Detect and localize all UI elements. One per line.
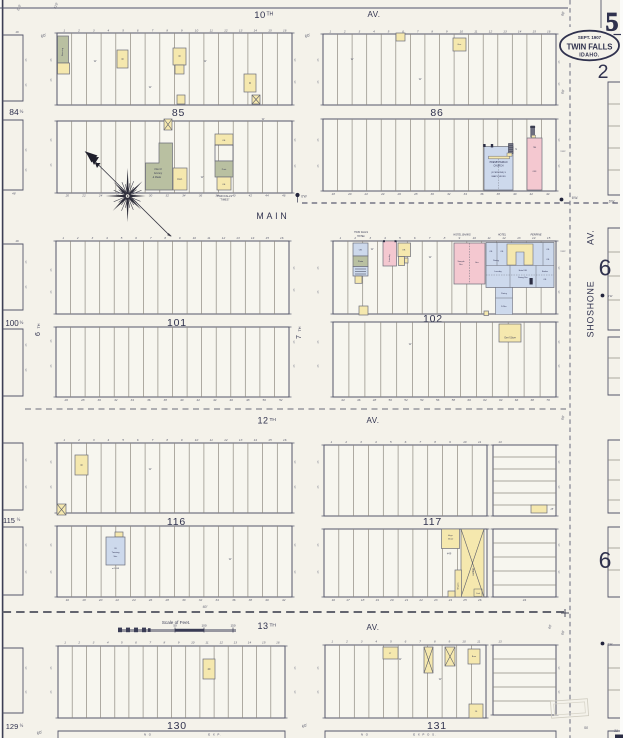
svg-text:Gen’l Store: Gen’l Store <box>504 337 516 340</box>
svg-text:28: 28 <box>413 192 418 196</box>
svg-text:28: 28 <box>80 398 85 402</box>
svg-text:12: 12 <box>224 438 228 442</box>
svg-text:40: 40 <box>265 598 269 602</box>
svg-text:34: 34 <box>130 398 134 402</box>
svg-text:W: W <box>409 342 412 346</box>
svg-text:24: 24 <box>448 598 453 602</box>
svg-text:8: 8 <box>431 30 433 34</box>
svg-text:7: 7 <box>429 236 431 240</box>
svg-text:15: 15 <box>547 236 551 240</box>
svg-text:7: 7 <box>417 30 419 34</box>
svg-text:11: 11 <box>477 640 480 644</box>
svg-text:24: 24 <box>98 194 103 198</box>
svg-text:9: 9 <box>459 236 461 240</box>
svg-text:3: 3 <box>93 641 95 645</box>
svg-text:D: D <box>179 54 181 58</box>
svg-text:100: 100 <box>5 319 19 328</box>
svg-text:22: 22 <box>114 598 119 602</box>
svg-text:Dining: Dining <box>493 260 499 262</box>
svg-text:100: 100 <box>201 624 206 628</box>
svg-text:Off.: Off. <box>402 250 406 252</box>
svg-text:11: 11 <box>205 641 208 645</box>
svg-text:½: ½ <box>20 723 24 728</box>
svg-text:30: 30 <box>149 194 153 198</box>
svg-text:9: 9 <box>449 440 451 444</box>
svg-text:6: 6 <box>405 440 407 444</box>
svg-text:42: 42 <box>249 194 253 198</box>
svg-text:Wagons: Wagons <box>458 583 460 590</box>
svg-text:W: W <box>262 117 265 121</box>
svg-text:Gro.: Gro. <box>457 43 462 46</box>
svg-text:½: ½ <box>17 517 21 522</box>
svg-text:18: 18 <box>82 598 86 602</box>
svg-text:13: 13 <box>239 29 243 33</box>
svg-text:7: 7 <box>152 29 154 33</box>
svg-text:3: 3 <box>369 236 371 240</box>
svg-text:4: 4 <box>375 440 377 444</box>
svg-text:7: 7 <box>419 440 421 444</box>
svg-text:2: 2 <box>353 236 356 240</box>
svg-text:W: W <box>149 467 152 471</box>
svg-text:6: 6 <box>599 255 612 281</box>
svg-text:16: 16 <box>280 236 284 240</box>
svg-text:13: 13 <box>234 641 238 645</box>
svg-text:8: 8 <box>434 640 436 644</box>
svg-text:3: 3 <box>92 236 94 240</box>
svg-text:10: 10 <box>254 10 266 21</box>
svg-text:5: 5 <box>121 236 123 240</box>
svg-text:150: 150 <box>230 624 235 628</box>
svg-text:60': 60' <box>203 605 208 609</box>
svg-text:50: 50 <box>262 398 266 402</box>
svg-text:3: 3 <box>93 438 95 442</box>
svg-text:Print: Print <box>222 168 227 171</box>
svg-text:44: 44 <box>265 194 269 198</box>
svg-text:10: 10 <box>191 641 195 645</box>
svg-text:MAIN: MAIN <box>256 211 289 221</box>
svg-text:Grain: Grain <box>448 539 454 541</box>
svg-text:10: 10 <box>195 438 199 442</box>
svg-text:12: 12 <box>489 30 493 34</box>
svg-text:IDAHO.: IDAHO. <box>579 52 600 58</box>
svg-text:30: 30 <box>430 192 434 196</box>
svg-text:20: 20 <box>65 194 70 198</box>
svg-text:13: 13 <box>257 621 268 631</box>
svg-text:Off.: Off. <box>546 259 550 261</box>
svg-text:44: 44 <box>546 192 550 196</box>
svg-text:TWIN FALLS: TWIN FALLS <box>567 42 613 51</box>
svg-text:115: 115 <box>3 516 15 525</box>
svg-text:13: 13 <box>236 236 240 240</box>
svg-text:26: 26 <box>396 192 401 196</box>
svg-text:86: 86 <box>430 107 443 119</box>
svg-text:6: 6 <box>405 640 407 644</box>
svg-text:22: 22 <box>81 194 86 198</box>
svg-text:129: 129 <box>6 722 19 731</box>
svg-text:36: 36 <box>147 398 151 402</box>
svg-text:9: 9 <box>178 641 180 645</box>
svg-text:TH: TH <box>270 623 277 629</box>
svg-text:15: 15 <box>265 236 269 240</box>
svg-text:46: 46 <box>282 194 286 198</box>
svg-text:64: 64 <box>499 398 503 402</box>
svg-text:Coal: Coal <box>476 593 480 595</box>
svg-text:13: 13 <box>503 30 507 34</box>
svg-text:1: 1 <box>64 641 66 645</box>
svg-text:32: 32 <box>114 398 118 402</box>
svg-text:Gro.: Gro. <box>475 261 479 264</box>
svg-text:5: 5 <box>390 440 392 444</box>
svg-text:& Meats: & Meats <box>153 176 162 179</box>
svg-text:W: W <box>429 255 432 259</box>
svg-text:Training: Training <box>112 551 121 554</box>
svg-text:52: 52 <box>279 398 283 402</box>
svg-text:W: W <box>229 557 232 561</box>
svg-text:20: 20 <box>98 598 103 602</box>
svg-text:30: 30 <box>97 398 101 402</box>
svg-text:N O: N O <box>144 733 152 737</box>
svg-text:Barber: Barber <box>542 271 548 273</box>
svg-text:14: 14 <box>254 29 258 33</box>
svg-text:46: 46 <box>229 398 233 402</box>
svg-text:10: 10 <box>463 440 467 444</box>
svg-text:40: 40 <box>232 194 236 198</box>
svg-text:14: 14 <box>251 236 255 240</box>
svg-text:4: 4 <box>384 236 386 240</box>
svg-text:52: 52 <box>404 398 408 402</box>
svg-text:44: 44 <box>341 398 345 402</box>
svg-text:50: 50 <box>388 398 392 402</box>
svg-text:9: 9 <box>179 236 181 240</box>
svg-text:117: 117 <box>423 516 442 528</box>
svg-text:W: W <box>351 57 354 61</box>
svg-text:38: 38 <box>249 598 253 602</box>
svg-text:1: 1 <box>63 29 65 33</box>
svg-text:60: 60 <box>467 398 471 402</box>
svg-text:36: 36 <box>480 192 484 196</box>
svg-text:3: 3 <box>359 30 361 34</box>
svg-text:10: 10 <box>472 236 476 240</box>
svg-text:14: 14 <box>254 438 258 442</box>
svg-text:17: 17 <box>346 598 350 602</box>
svg-text:(5 PERSONS) S: (5 PERSONS) S <box>491 172 506 174</box>
svg-text:42: 42 <box>196 398 200 402</box>
svg-text:20: 20 <box>347 192 352 196</box>
svg-text:8: 8 <box>434 440 436 444</box>
svg-text:Off.: Off. <box>546 249 550 251</box>
svg-text:36: 36 <box>232 598 236 602</box>
svg-text:5′WP: 5′WP <box>560 251 566 253</box>
svg-text:Lumber: Lumber <box>472 568 475 576</box>
svg-text:12: 12 <box>222 236 226 240</box>
svg-text:2: 2 <box>77 438 80 442</box>
svg-text:42: 42 <box>529 192 533 196</box>
svg-text:AV.: AV. <box>366 416 379 425</box>
svg-text:1: 1 <box>63 438 65 442</box>
svg-text:32: 32 <box>165 194 169 198</box>
svg-text:D: D <box>122 57 124 61</box>
svg-text:14: 14 <box>248 641 252 645</box>
svg-text:21: 21 <box>404 598 409 602</box>
svg-text:34: 34 <box>463 192 467 196</box>
svg-text:7: 7 <box>419 640 421 644</box>
svg-text:2: 2 <box>345 640 348 644</box>
svg-text:2: 2 <box>77 641 80 645</box>
svg-text:26: 26 <box>148 598 153 602</box>
svg-text:56: 56 <box>436 398 440 402</box>
svg-text:Rm.: Rm. <box>459 264 463 266</box>
svg-text:44: 44 <box>213 398 217 402</box>
svg-text:15: 15 <box>532 30 536 34</box>
svg-text:2: 2 <box>598 61 609 83</box>
svg-text:12: 12 <box>502 236 506 240</box>
svg-text:15: 15 <box>262 641 266 645</box>
svg-text:40: 40 <box>513 192 517 196</box>
svg-text:1: 1 <box>331 440 333 444</box>
svg-text:Dining Rm.: Dining Rm. <box>518 277 528 279</box>
svg-text:E X P.: E X P. <box>208 733 222 737</box>
svg-text:16: 16 <box>283 29 287 33</box>
svg-text:11: 11 <box>478 440 481 444</box>
svg-text:9: 9 <box>181 438 183 442</box>
svg-text:11: 11 <box>210 29 213 33</box>
svg-text:Off.: Off. <box>359 250 363 252</box>
svg-text:15: 15 <box>268 29 272 33</box>
svg-text:24: 24 <box>380 192 385 196</box>
svg-text:12: 12 <box>257 416 268 426</box>
svg-text:5′WP: 5′WP <box>560 151 566 153</box>
svg-text:Off.: Off. <box>543 279 547 281</box>
svg-text:16: 16 <box>15 30 19 34</box>
svg-text:D: D <box>249 81 251 85</box>
svg-text:5: 5 <box>121 641 123 645</box>
svg-text:40: 40 <box>180 398 184 402</box>
svg-text:6: 6 <box>135 641 137 645</box>
svg-text:14: 14 <box>518 30 522 34</box>
svg-text:1: 1 <box>331 640 333 644</box>
svg-text:4: 4 <box>373 30 375 34</box>
svg-text:130: 130 <box>167 720 187 732</box>
svg-text:15: 15 <box>268 438 272 442</box>
svg-text:20: 20 <box>389 598 394 602</box>
svg-text:Photo: Photo <box>358 260 364 263</box>
svg-text:32: 32 <box>447 192 451 196</box>
svg-text:11: 11 <box>487 236 490 240</box>
svg-text:Flour’d: Flour’d <box>154 169 162 171</box>
svg-text:34: 34 <box>215 598 219 602</box>
svg-text:Off.: Off. <box>222 184 226 186</box>
svg-text:5: 5 <box>390 640 392 644</box>
svg-text:8: 8 <box>166 29 168 33</box>
svg-text:6: 6 <box>137 438 139 442</box>
svg-text:TH: TH <box>270 417 277 423</box>
svg-text:Grocery: Grocery <box>154 173 163 175</box>
svg-text:4: 4 <box>106 236 108 240</box>
svg-text:7: 7 <box>296 335 303 339</box>
svg-text:13: 13 <box>498 440 502 444</box>
svg-text:W: W <box>439 677 442 681</box>
svg-text:W: W <box>371 247 374 251</box>
svg-text:16: 16 <box>15 239 19 243</box>
svg-text:AV.: AV. <box>366 623 379 632</box>
svg-text:11: 11 <box>210 438 213 442</box>
svg-text:Sample: Sample <box>457 261 465 263</box>
svg-text:46': 46' <box>12 192 16 196</box>
svg-text:70: 70 <box>546 398 550 402</box>
svg-text:Hotel Off.: Hotel Off. <box>519 269 528 272</box>
svg-text:8: 8 <box>164 236 166 240</box>
svg-text:12: 12 <box>219 641 223 645</box>
svg-text:38: 38 <box>496 192 500 196</box>
svg-text:10: 10 <box>460 30 464 34</box>
svg-text:8: 8 <box>164 641 166 645</box>
svg-text:W: W <box>94 59 97 63</box>
svg-text:12: 12 <box>224 29 228 33</box>
svg-text:W: W <box>201 175 204 179</box>
svg-text:28: 28 <box>164 598 169 602</box>
svg-text:22: 22 <box>363 192 368 196</box>
svg-text:11: 11 <box>474 30 477 34</box>
svg-text:Sta.: Sta. <box>114 555 118 558</box>
svg-text:9: 9 <box>449 640 451 644</box>
svg-text:18: 18 <box>331 192 335 196</box>
svg-text:6′W.: 6′W. <box>572 196 579 200</box>
svg-text:48: 48 <box>373 398 377 402</box>
svg-text:Laundry: Laundry <box>494 271 501 273</box>
svg-text:6: 6 <box>137 29 139 33</box>
svg-text:½: ½ <box>20 108 24 114</box>
svg-text:7: 7 <box>149 641 151 645</box>
svg-text:22: 22 <box>418 598 423 602</box>
svg-text:½: ½ <box>20 319 24 325</box>
svg-text:W: W <box>419 77 422 81</box>
svg-text:131: 131 <box>427 720 447 732</box>
svg-text:W: W <box>399 657 402 661</box>
svg-text:16: 16 <box>66 598 70 602</box>
svg-text:1: 1 <box>340 236 342 240</box>
svg-text:5: 5 <box>399 236 401 240</box>
svg-text:6′W.: 6′W. <box>609 200 616 204</box>
svg-text:18: 18 <box>361 598 365 602</box>
svg-text:11: 11 <box>207 236 210 240</box>
svg-text:SEPT. 1907: SEPT. 1907 <box>578 35 602 40</box>
svg-text:38: 38 <box>163 398 167 402</box>
svg-text:AV.: AV. <box>367 10 380 19</box>
svg-text:SHOSHONE: SHOSHONE <box>586 281 596 338</box>
svg-text:D: D <box>81 463 83 467</box>
svg-text:34: 34 <box>182 194 186 198</box>
svg-text:HOTEL: HOTEL <box>357 235 366 238</box>
svg-text:25': 25' <box>549 508 554 511</box>
svg-text:23: 23 <box>433 598 438 602</box>
svg-text:24: 24 <box>131 598 136 602</box>
svg-text:Off.: Off. <box>489 251 493 253</box>
svg-text:4: 4 <box>108 438 110 442</box>
svg-text:14: 14 <box>532 236 536 240</box>
svg-text:S: S <box>515 147 517 151</box>
svg-text:at 1059: at 1059 <box>112 567 120 570</box>
svg-text:10: 10 <box>462 640 466 644</box>
svg-text:3: 3 <box>360 440 362 444</box>
svg-text:SEATS GROSS: SEATS GROSS <box>491 175 506 178</box>
svg-text:32: 32 <box>199 598 203 602</box>
svg-text:Off.: Off. <box>222 140 226 142</box>
svg-text:8: 8 <box>166 438 168 442</box>
svg-text:10: 10 <box>195 29 199 33</box>
svg-text:42: 42 <box>282 598 286 602</box>
svg-text:10: 10 <box>193 236 197 240</box>
svg-text:6: 6 <box>135 236 137 240</box>
svg-text:8: 8 <box>444 236 446 240</box>
svg-text:6: 6 <box>599 547 612 573</box>
svg-text:HOTEL BANKS: HOTEL BANKS <box>453 234 471 237</box>
svg-text:6: 6 <box>414 236 416 240</box>
svg-text:TH: TH <box>267 12 274 18</box>
svg-text:7: 7 <box>152 438 154 442</box>
svg-text:W: W <box>204 59 207 63</box>
svg-text:W: W <box>149 85 152 89</box>
svg-text:58: 58 <box>452 398 456 402</box>
svg-text:6′W: 6′W <box>301 195 306 199</box>
svg-text:44: 44 <box>523 598 527 602</box>
svg-text:E X P O S.: E X P O S. <box>413 733 436 737</box>
svg-text:N O: N O <box>361 733 369 737</box>
svg-text:19: 19 <box>375 598 379 602</box>
svg-text:Furn.: Furn. <box>177 179 183 181</box>
svg-text:5: 5 <box>606 8 619 37</box>
svg-text:36: 36 <box>199 194 203 198</box>
svg-text:Pantry: Pantry <box>501 292 507 295</box>
svg-text:TWIN FALLS: TWIN FALLS <box>354 231 368 234</box>
svg-text:449: 449 <box>447 552 452 556</box>
svg-text:50: 50 <box>584 726 588 730</box>
svg-text:16: 16 <box>332 598 336 602</box>
svg-text:16: 16 <box>547 30 551 34</box>
svg-text:4: 4 <box>107 641 109 645</box>
svg-text:66: 66 <box>515 398 519 402</box>
svg-text:6: 6 <box>35 332 42 336</box>
svg-text:3: 3 <box>361 640 363 644</box>
svg-text:2: 2 <box>76 236 79 240</box>
svg-text:9: 9 <box>446 30 448 34</box>
svg-text:13: 13 <box>517 236 521 240</box>
svg-text:3: 3 <box>93 29 95 33</box>
svg-text:54: 54 <box>420 398 424 402</box>
svg-text:7: 7 <box>150 236 152 240</box>
svg-text:“TIMES”: “TIMES” <box>220 198 230 202</box>
svg-text:48: 48 <box>246 398 250 402</box>
svg-text:2: 2 <box>77 29 80 33</box>
svg-text:50: 50 <box>173 624 177 628</box>
svg-text:Barn: Barn <box>472 656 476 658</box>
svg-text:30: 30 <box>182 598 186 602</box>
svg-text:5: 5 <box>122 438 124 442</box>
svg-text:13: 13 <box>498 640 502 644</box>
svg-text:68: 68 <box>531 398 535 402</box>
svg-text:2: 2 <box>344 440 347 444</box>
svg-text:25: 25 <box>462 598 467 602</box>
svg-text:5: 5 <box>388 30 390 34</box>
svg-text:9: 9 <box>181 29 183 33</box>
svg-text:4: 4 <box>108 29 110 33</box>
svg-text:5: 5 <box>122 29 124 33</box>
svg-text:HOTEL: HOTEL <box>498 234 507 237</box>
svg-text:62: 62 <box>483 398 487 402</box>
svg-text:2: 2 <box>343 30 346 34</box>
svg-text:46: 46 <box>357 398 361 402</box>
svg-text:85: 85 <box>172 107 185 119</box>
svg-text:1: 1 <box>62 236 64 240</box>
